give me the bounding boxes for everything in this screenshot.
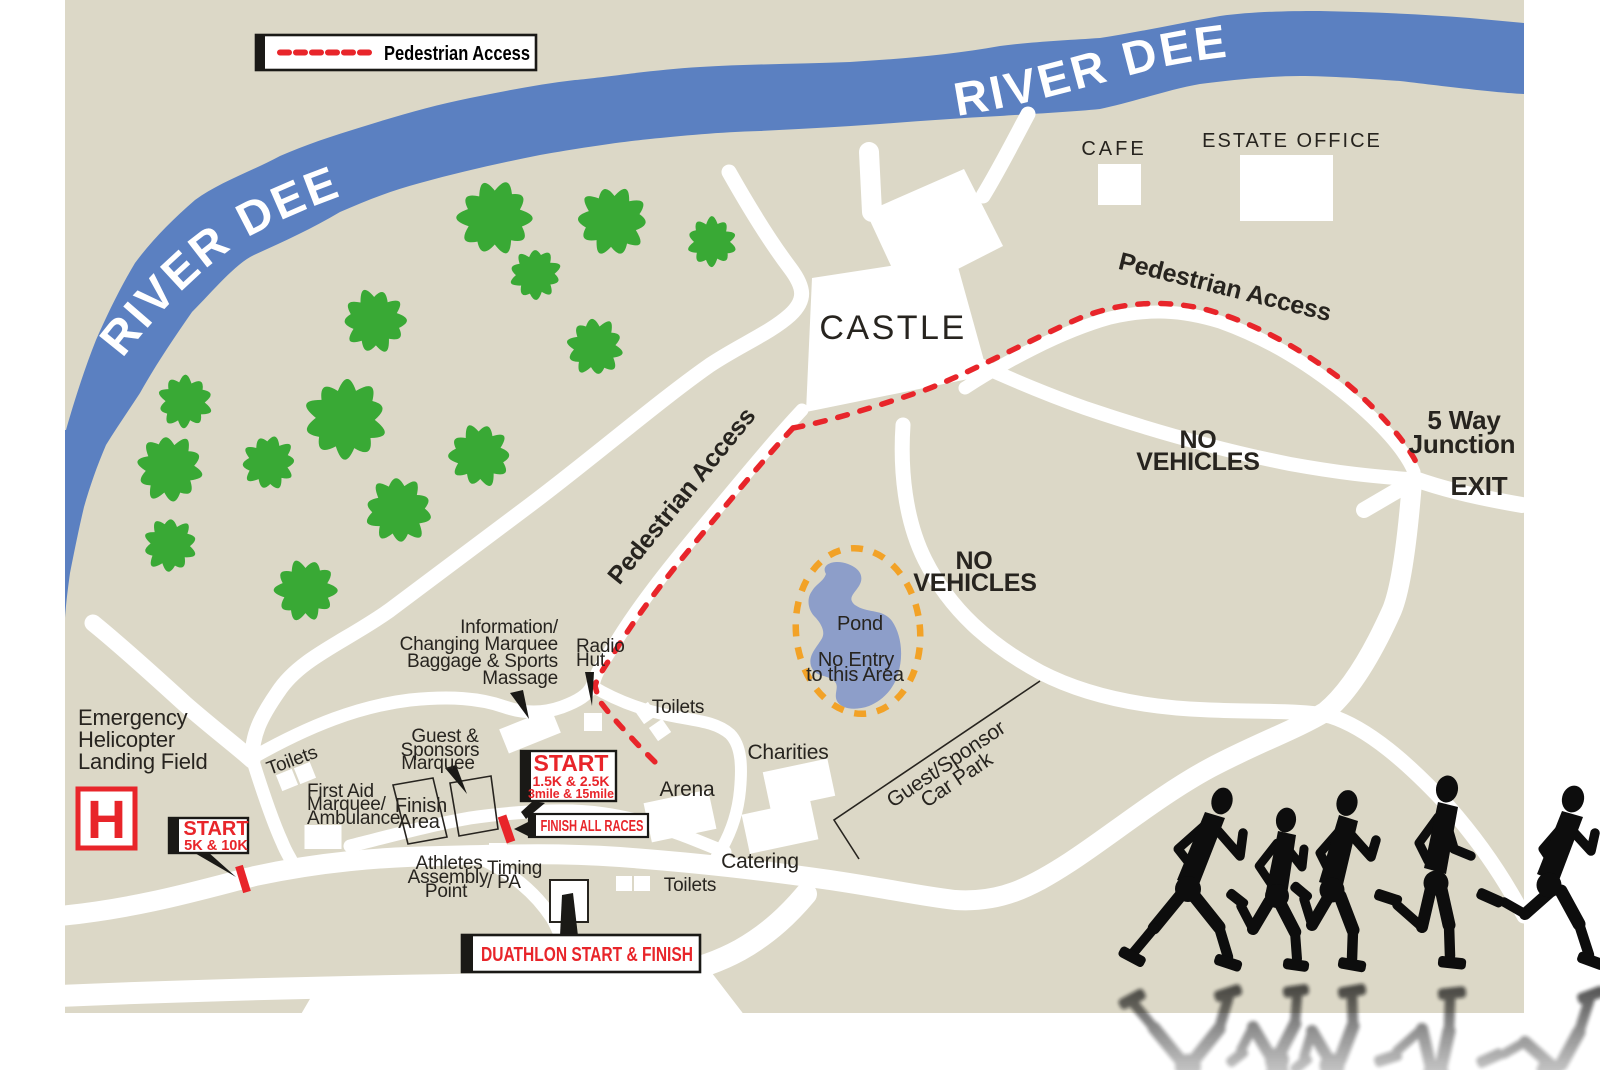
svg-text:to this Area: to this Area — [806, 664, 905, 686]
svg-text:CAFE: CAFE — [1081, 138, 1146, 160]
svg-text:Area: Area — [398, 811, 441, 833]
svg-text:5K & 10K: 5K & 10K — [184, 838, 248, 854]
svg-text:VEHICLES: VEHICLES — [1136, 448, 1259, 476]
svg-text:/ PA: / PA — [487, 872, 521, 893]
svg-text:ESTATE OFFICE: ESTATE OFFICE — [1202, 130, 1382, 152]
svg-text:Pond: Pond — [837, 613, 883, 635]
svg-text:START: START — [183, 818, 248, 840]
svg-text:VEHICLES: VEHICLES — [913, 569, 1036, 597]
svg-text:Junction: Junction — [1409, 429, 1516, 459]
svg-text:Pedestrian Access: Pedestrian Access — [384, 43, 530, 65]
svg-text:Marquee: Marquee — [401, 753, 475, 774]
svg-text:CASTLE: CASTLE — [819, 309, 966, 347]
svg-text:Landing Field: Landing Field — [78, 749, 208, 774]
svg-text:H: H — [87, 790, 126, 850]
svg-text:Catering: Catering — [721, 850, 799, 873]
svg-text:Point: Point — [425, 881, 468, 902]
svg-text:Massage: Massage — [482, 668, 558, 689]
svg-text:3mile & 15mile: 3mile & 15mile — [528, 786, 614, 801]
svg-text:DUATHLON START & FINISH: DUATHLON START & FINISH — [481, 944, 693, 966]
svg-text:EXIT: EXIT — [1451, 471, 1508, 501]
svg-text:Charities: Charities — [747, 741, 828, 764]
svg-text:Ambulance: Ambulance — [307, 808, 400, 829]
svg-text:Hut: Hut — [576, 650, 606, 671]
svg-text:Arena: Arena — [659, 778, 715, 801]
svg-text:Toilets: Toilets — [652, 697, 704, 718]
svg-text:FINISH ALL RACES: FINISH ALL RACES — [541, 818, 644, 835]
svg-text:Toilets: Toilets — [664, 875, 716, 896]
